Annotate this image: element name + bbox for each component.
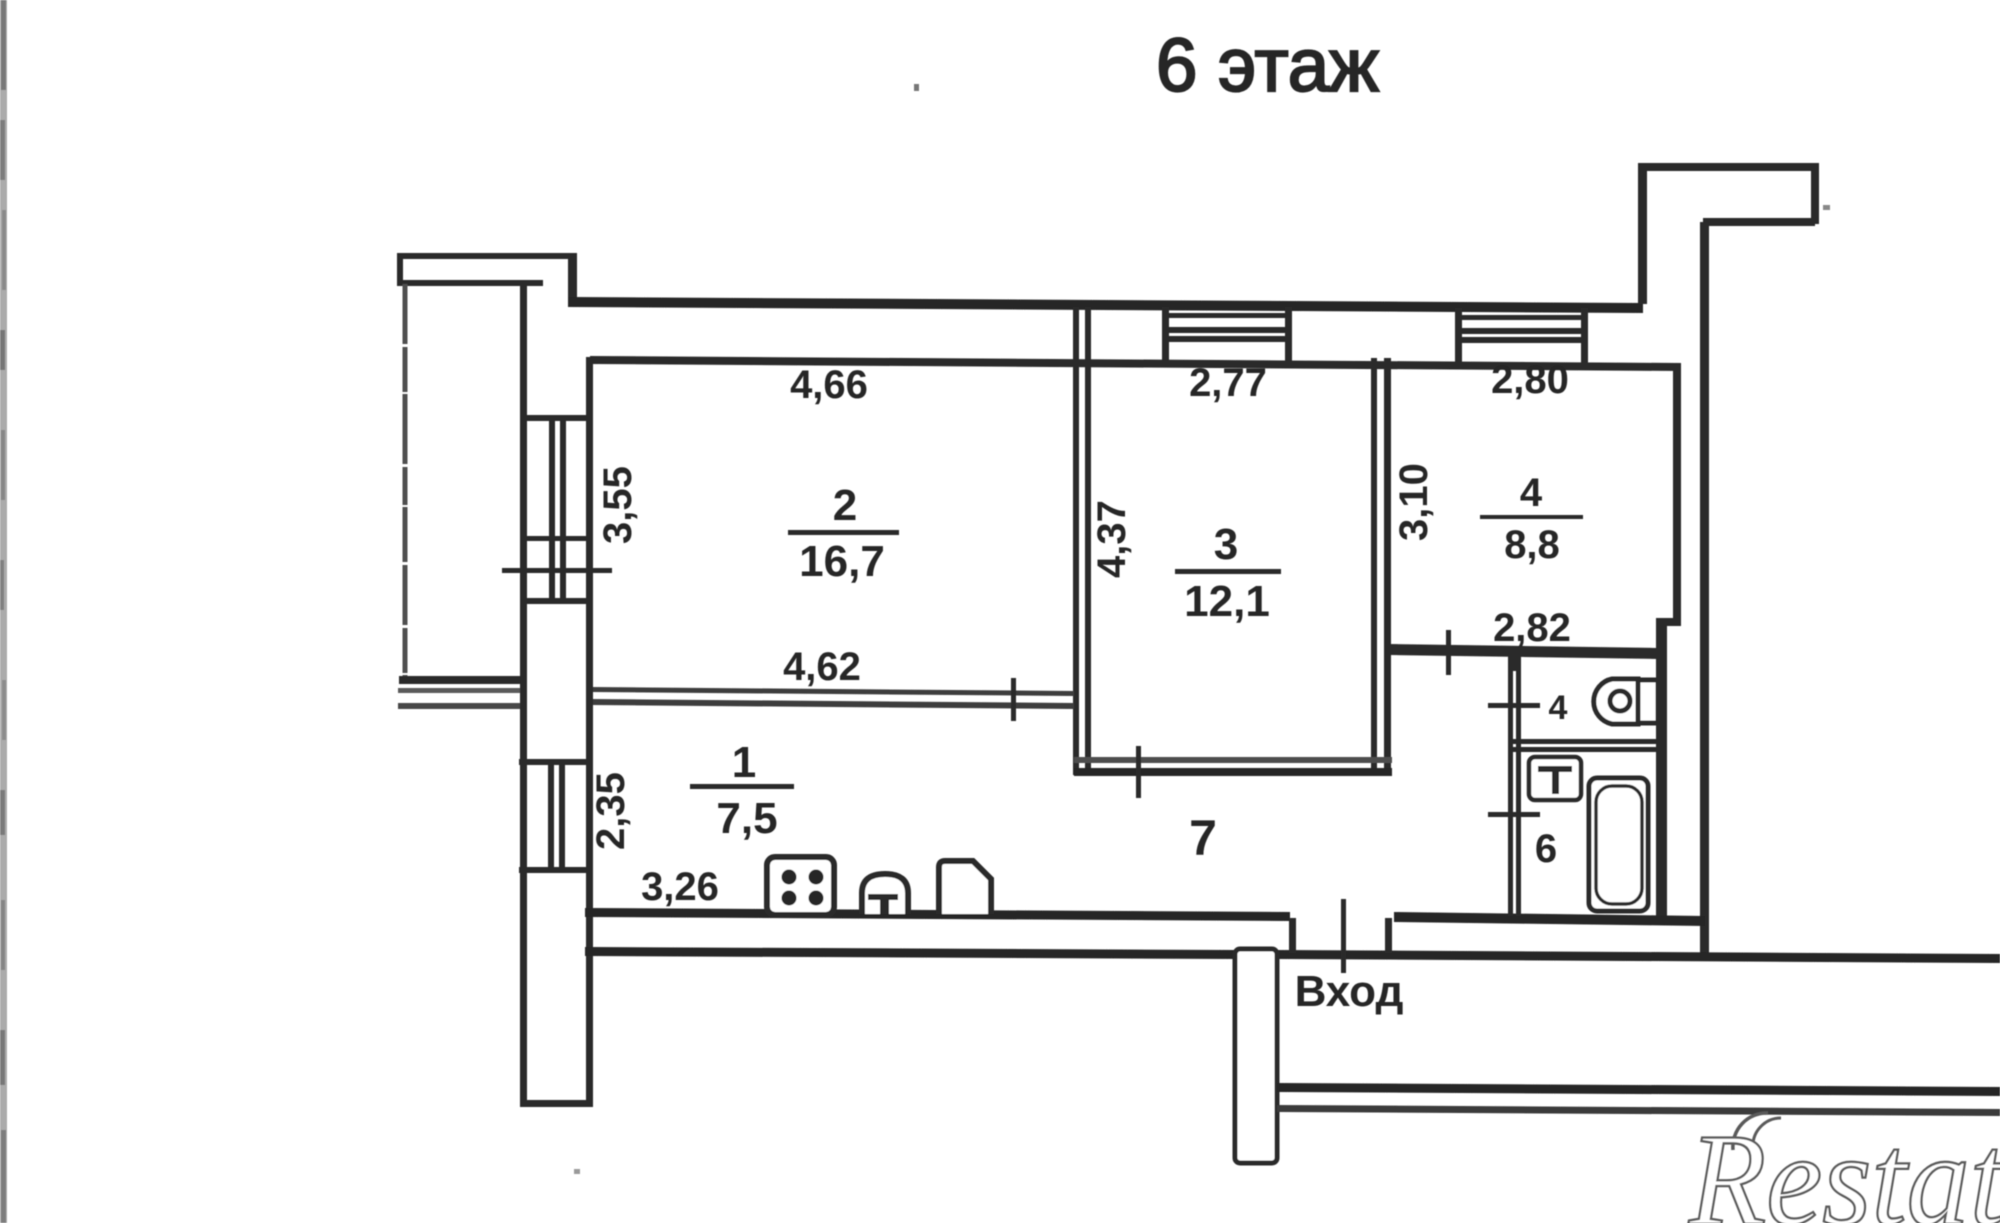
- svg-text:4,37: 4,37: [1090, 500, 1134, 578]
- svg-text:4,66: 4,66: [790, 363, 868, 407]
- svg-text:6: 6: [1535, 827, 1557, 871]
- svg-text:4: 4: [1520, 471, 1543, 515]
- svg-text:3: 3: [1214, 520, 1238, 569]
- svg-text:3,26: 3,26: [641, 865, 719, 909]
- svg-text:3,10: 3,10: [1392, 463, 1436, 541]
- svg-text:Restate: Restate: [1688, 1106, 2000, 1223]
- svg-text:3,55: 3,55: [596, 466, 640, 544]
- svg-text:7,5: 7,5: [716, 794, 777, 843]
- svg-text:2: 2: [833, 481, 857, 530]
- svg-text:1: 1: [732, 738, 756, 787]
- svg-text:2,35: 2,35: [589, 772, 633, 850]
- svg-text:2,80: 2,80: [1491, 358, 1569, 402]
- svg-text:7: 7: [1189, 810, 1217, 866]
- svg-text:8,8: 8,8: [1504, 523, 1560, 567]
- svg-text:4,62: 4,62: [783, 645, 861, 689]
- svg-text:6 этаж: 6 этаж: [1156, 23, 1379, 107]
- svg-text:Вход: Вход: [1295, 967, 1404, 1016]
- svg-text:2,77: 2,77: [1189, 361, 1267, 405]
- svg-text:12,1: 12,1: [1184, 577, 1270, 626]
- svg-text:4: 4: [1549, 689, 1568, 727]
- svg-text:16,7: 16,7: [799, 537, 885, 586]
- svg-text:2,82: 2,82: [1493, 606, 1571, 650]
